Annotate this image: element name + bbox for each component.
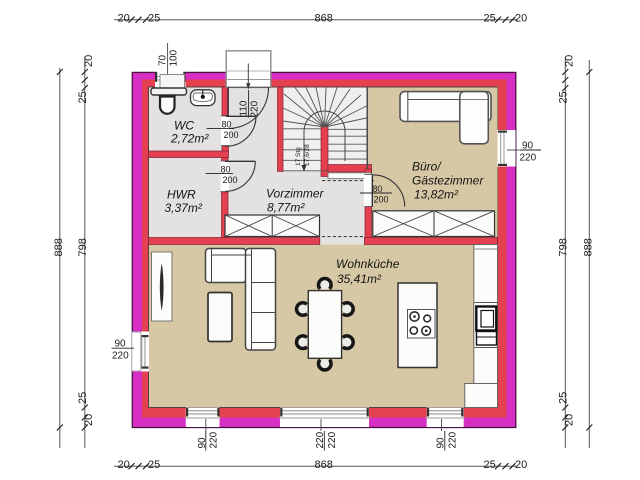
svg-text:8,77m²: 8,77m² xyxy=(267,201,305,215)
svg-text:20: 20 xyxy=(515,13,527,25)
svg-text:20: 20 xyxy=(515,459,527,471)
svg-text:868: 868 xyxy=(315,459,333,471)
svg-text:20: 20 xyxy=(564,414,576,426)
svg-text:Wohnküche: Wohnküche xyxy=(336,257,400,271)
svg-text:20: 20 xyxy=(83,55,95,67)
svg-text:868: 868 xyxy=(315,13,333,25)
svg-text:90: 90 xyxy=(115,339,127,350)
svg-text:25: 25 xyxy=(148,459,160,471)
svg-text:888: 888 xyxy=(53,238,65,256)
svg-text:90: 90 xyxy=(436,437,447,449)
svg-text:WC: WC xyxy=(174,119,194,133)
svg-text:220: 220 xyxy=(250,100,261,117)
svg-text:20: 20 xyxy=(83,414,95,426)
svg-text:2,72m²: 2,72m² xyxy=(170,132,209,146)
svg-text:220: 220 xyxy=(520,153,537,164)
svg-text:220: 220 xyxy=(327,431,338,448)
svg-text:HWR: HWR xyxy=(167,188,196,202)
svg-text:13,82m²: 13,82m² xyxy=(414,188,459,202)
svg-text:Gästezimmer: Gästezimmer xyxy=(412,174,484,188)
svg-text:25: 25 xyxy=(148,13,160,25)
svg-text:25: 25 xyxy=(77,91,89,103)
svg-text:90: 90 xyxy=(522,141,534,152)
svg-text:20: 20 xyxy=(118,13,130,25)
svg-text:220: 220 xyxy=(112,351,129,362)
svg-text:90: 90 xyxy=(197,437,208,449)
svg-text:25: 25 xyxy=(484,13,496,25)
svg-text:110: 110 xyxy=(239,100,250,116)
svg-text:80: 80 xyxy=(221,165,231,175)
svg-text:200: 200 xyxy=(224,130,239,140)
svg-text:25: 25 xyxy=(484,459,496,471)
svg-text:220: 220 xyxy=(447,431,458,448)
svg-text:888: 888 xyxy=(583,238,595,256)
svg-text:17,6/28: 17,6/28 xyxy=(304,144,311,166)
svg-text:Büro/: Büro/ xyxy=(412,160,442,174)
svg-text:798: 798 xyxy=(558,238,570,256)
svg-text:35,41m²: 35,41m² xyxy=(337,272,382,286)
svg-text:200: 200 xyxy=(223,175,238,185)
svg-text:Vorzimmer: Vorzimmer xyxy=(266,187,325,201)
svg-text:100: 100 xyxy=(169,49,180,66)
svg-text:220: 220 xyxy=(209,431,220,448)
svg-text:3,37m²: 3,37m² xyxy=(165,201,203,215)
svg-text:80: 80 xyxy=(373,184,383,194)
svg-text:25: 25 xyxy=(558,392,570,404)
svg-text:20: 20 xyxy=(118,459,130,471)
svg-text:25: 25 xyxy=(558,91,570,103)
svg-text:200: 200 xyxy=(374,195,389,205)
svg-text:220: 220 xyxy=(315,431,326,448)
svg-text:25: 25 xyxy=(77,392,89,404)
svg-text:80: 80 xyxy=(222,120,232,130)
svg-text:70: 70 xyxy=(158,54,169,66)
svg-text:20: 20 xyxy=(564,55,576,67)
svg-text:798: 798 xyxy=(77,238,89,256)
svg-text:17 Stg: 17 Stg xyxy=(295,147,302,166)
